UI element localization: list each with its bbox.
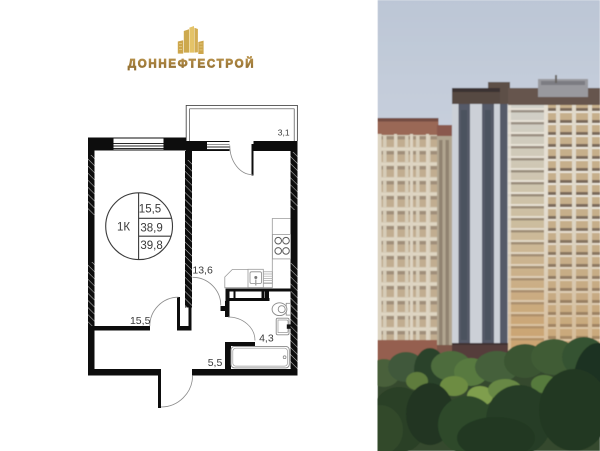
svg-text:3,1: 3,1 (278, 128, 290, 138)
svg-text:5,5: 5,5 (208, 357, 223, 369)
svg-text:4,3: 4,3 (259, 332, 274, 344)
svg-text:15,5: 15,5 (139, 203, 161, 215)
svg-text:39,8: 39,8 (140, 240, 162, 252)
svg-text:13,6: 13,6 (192, 264, 213, 276)
svg-text:38,9: 38,9 (140, 223, 162, 235)
svg-text:1К: 1К (117, 222, 130, 234)
svg-text:15,5: 15,5 (130, 315, 151, 327)
svg-text:ДОННЕФТЕСТРОЙ: ДОННЕФТЕСТРОЙ (128, 58, 255, 71)
